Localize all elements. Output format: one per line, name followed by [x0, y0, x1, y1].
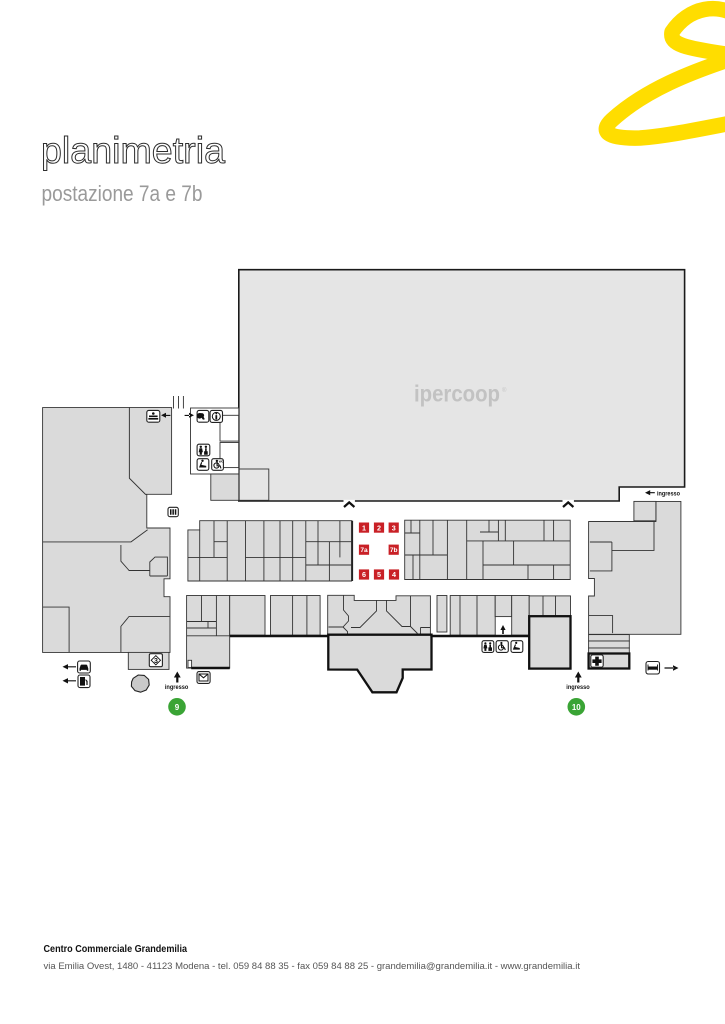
svg-text:6: 6: [362, 570, 366, 579]
svg-text:7a: 7a: [360, 547, 368, 554]
svg-text:3: 3: [392, 523, 396, 532]
svg-text:ipercoop: ipercoop: [414, 381, 500, 407]
svg-text:WC: WC: [219, 460, 225, 464]
svg-text:1: 1: [362, 523, 366, 532]
svg-text:7b: 7b: [390, 547, 398, 554]
svg-text:planimetria: planimetria: [41, 130, 225, 171]
svg-text:®: ®: [502, 387, 507, 394]
svg-text:5: 5: [377, 570, 381, 579]
svg-text:ingresso: ingresso: [566, 684, 590, 691]
svg-text:9: 9: [175, 703, 180, 712]
svg-text:3: 3: [154, 658, 158, 665]
svg-text:ingresso: ingresso: [165, 684, 189, 691]
svg-text:2: 2: [377, 523, 381, 532]
svg-text:4: 4: [392, 570, 396, 579]
svg-text:via Emilia Ovest, 1480 - 41123: via Emilia Ovest, 1480 - 41123 Modena - …: [44, 961, 581, 971]
svg-text:postazione 7a e 7b: postazione 7a e 7b: [42, 181, 203, 206]
svg-text:ingresso: ingresso: [657, 490, 680, 497]
svg-text:Centro Commerciale Grandemilia: Centro Commerciale Grandemilia: [44, 944, 188, 955]
svg-text:10: 10: [572, 703, 581, 712]
